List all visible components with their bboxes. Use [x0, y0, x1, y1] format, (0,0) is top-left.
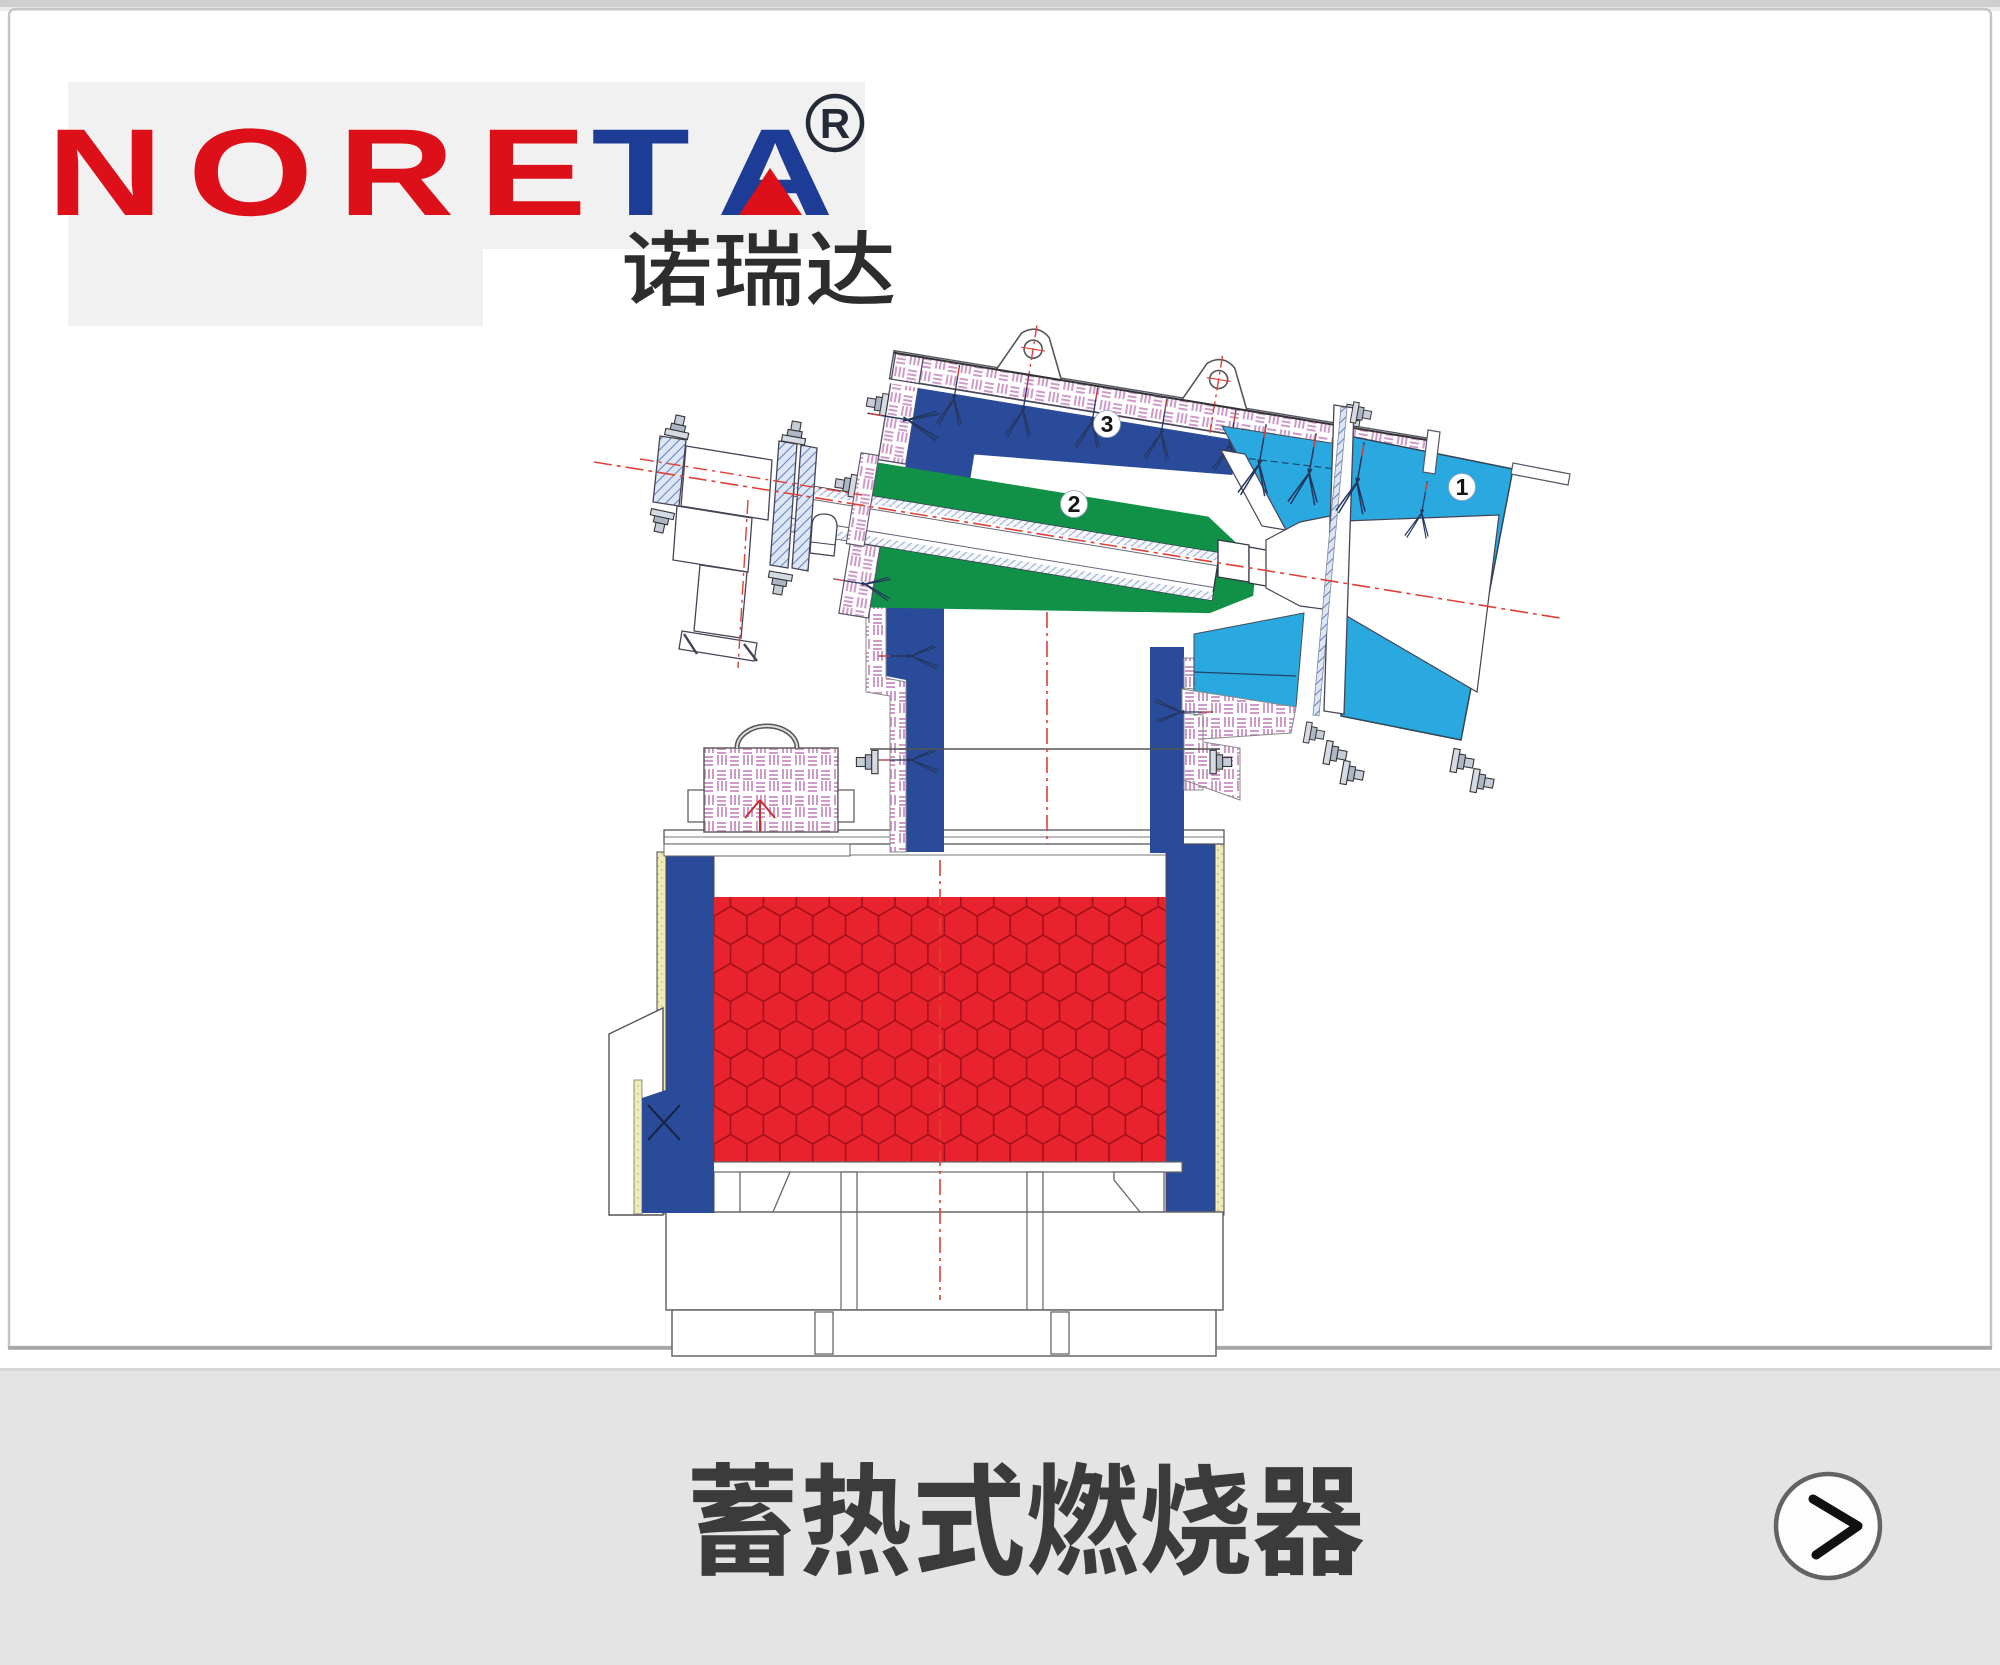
svg-text:R: R — [820, 100, 850, 147]
svg-text:1: 1 — [1456, 474, 1469, 500]
svg-text:2: 2 — [1068, 491, 1081, 517]
svg-text:3: 3 — [1101, 411, 1114, 437]
svg-text:NORE: NORE — [47, 104, 611, 242]
